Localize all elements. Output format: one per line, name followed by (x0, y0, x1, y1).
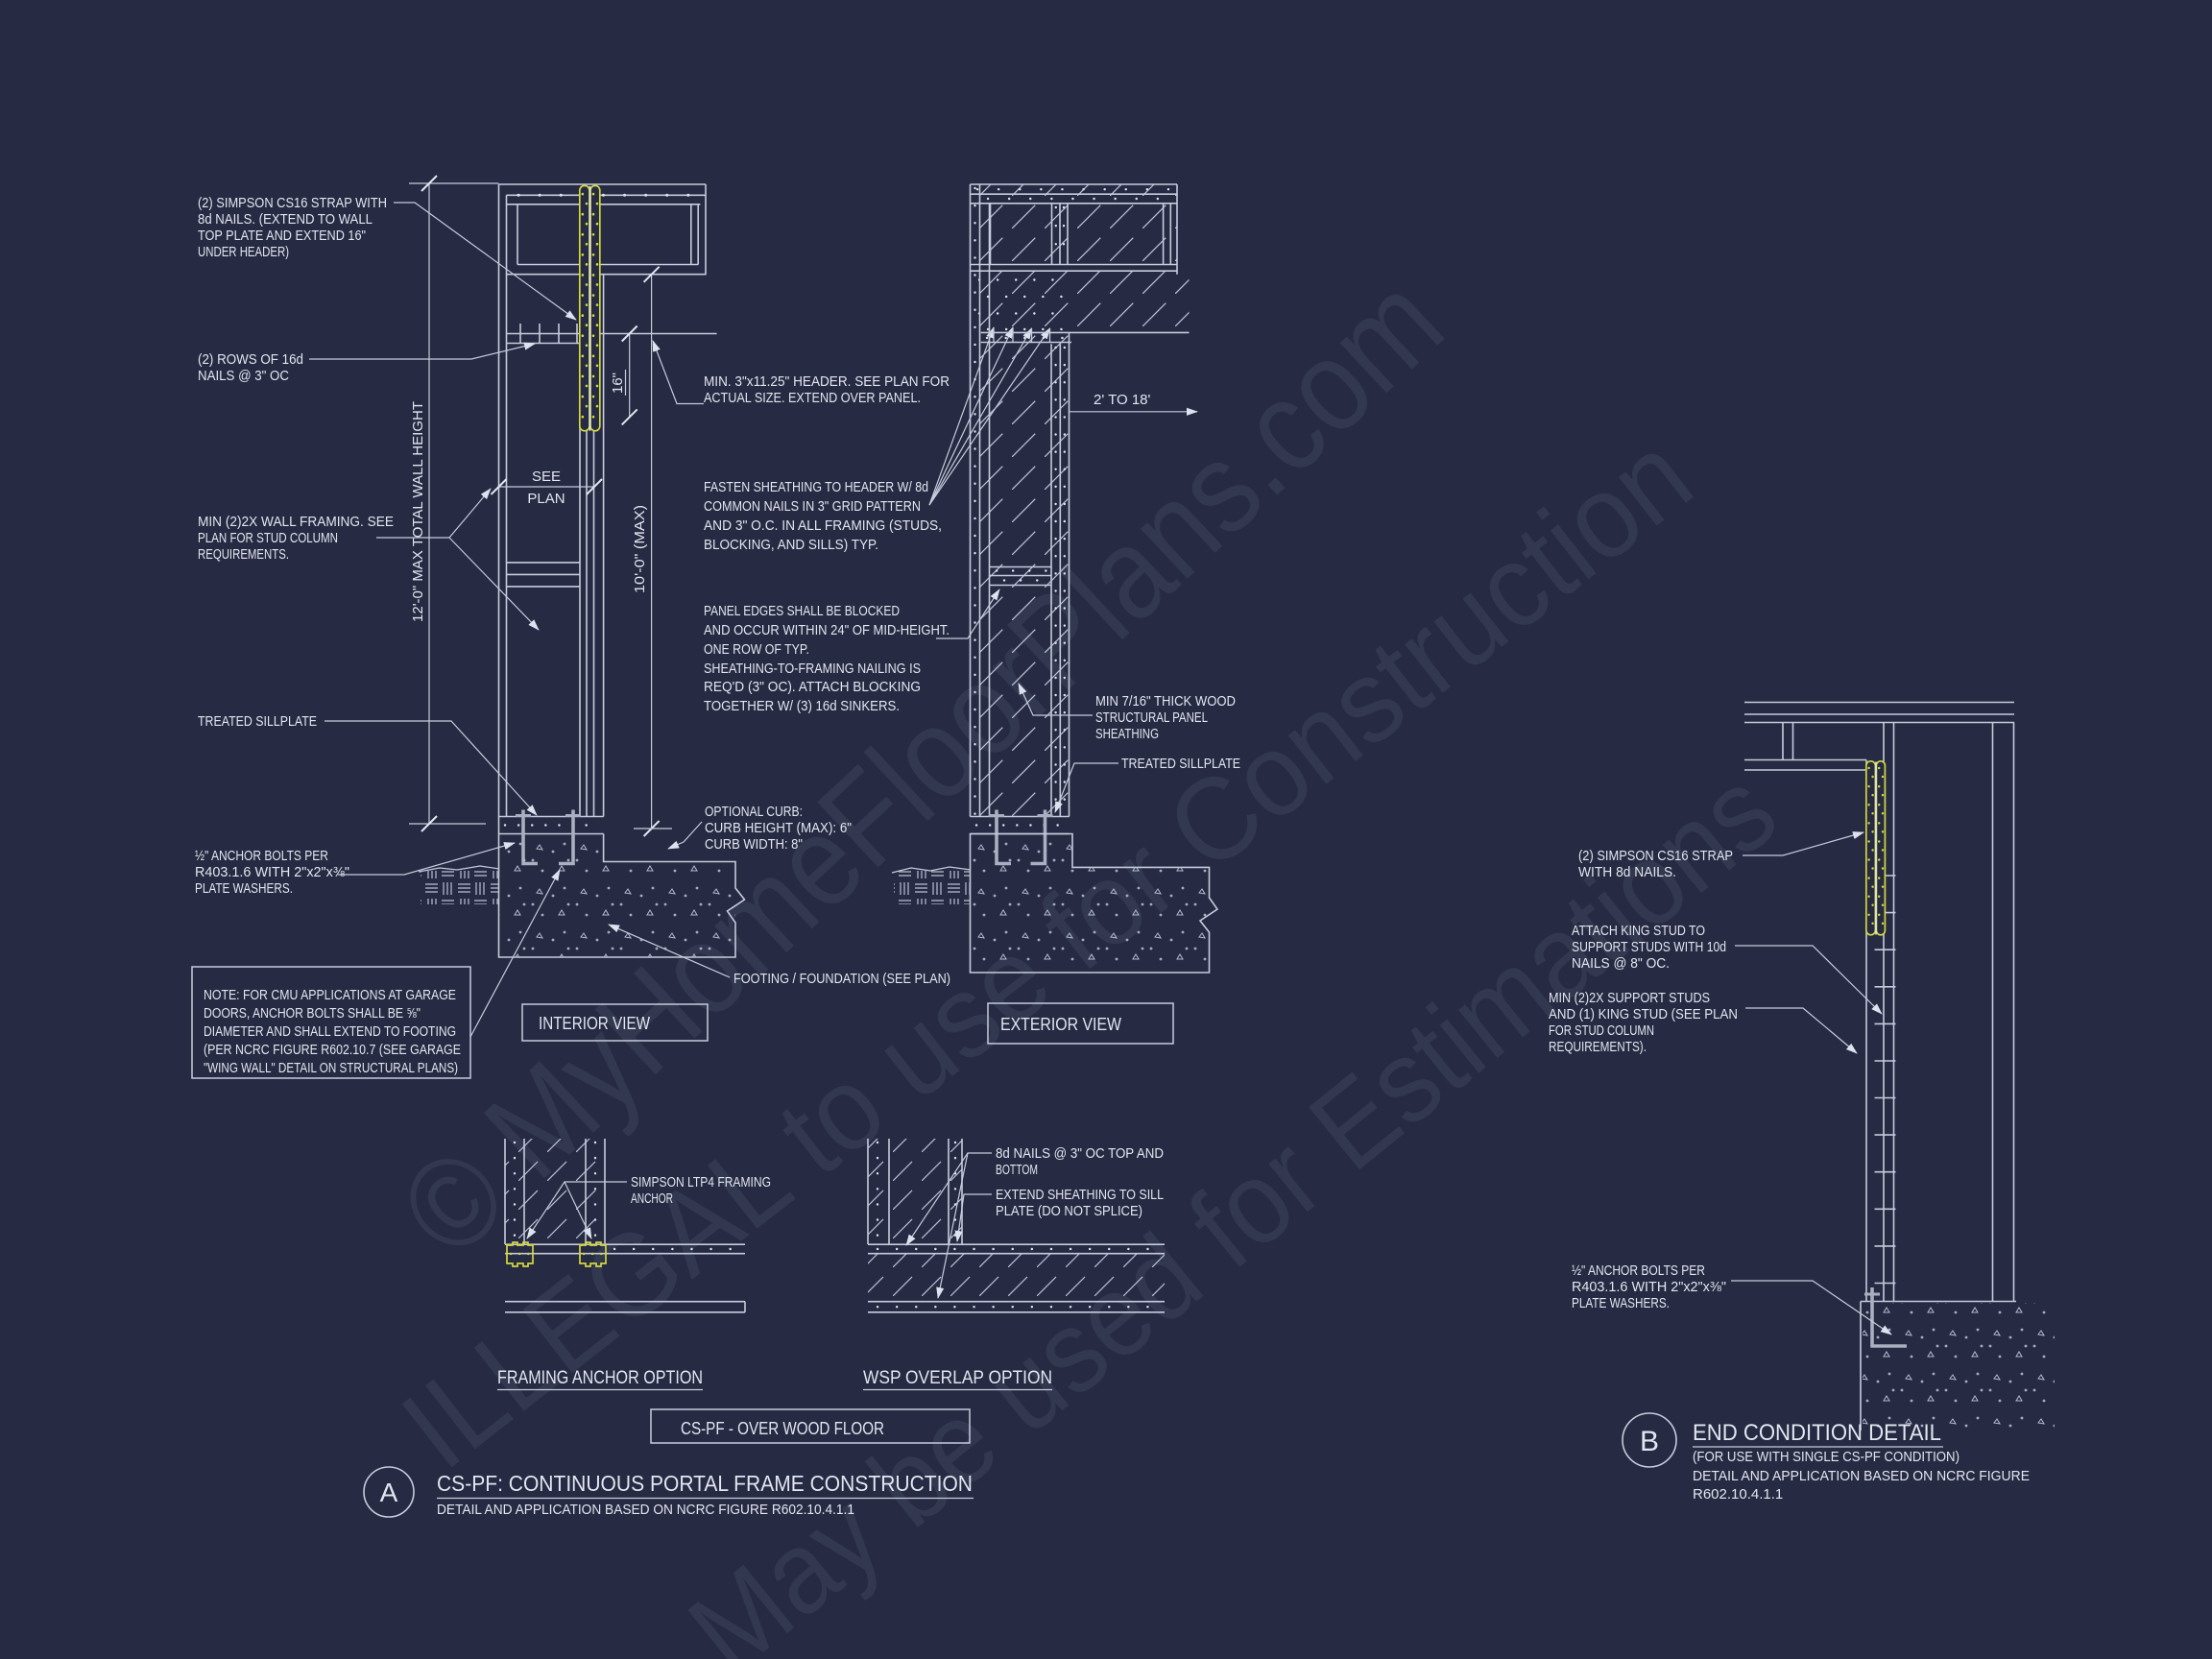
svg-text:R403.1.6 WITH 2"x2"x⅜": R403.1.6 WITH 2"x2"x⅜" (1572, 1280, 1726, 1295)
svg-text:COMMON NAILS IN 3" GRID PATTER: COMMON NAILS IN 3" GRID PATTERN (704, 499, 921, 515)
svg-text:SHEATHING: SHEATHING (1095, 727, 1159, 742)
svg-text:8d NAILS @ 3" OC TOP AND: 8d NAILS @ 3" OC TOP AND (996, 1146, 1164, 1162)
svg-text:FASTEN SHEATHING TO HEADER W/: FASTEN SHEATHING TO HEADER W/ 8d (704, 480, 928, 495)
svg-text:FOOTING / FOUNDATION (SEE PLAN: FOOTING / FOUNDATION (SEE PLAN) (733, 972, 950, 987)
svg-text:OPTIONAL CURB:: OPTIONAL CURB: (705, 805, 803, 820)
svg-text:AND (1) KING STUD (SEE PLAN: AND (1) KING STUD (SEE PLAN (1549, 1007, 1738, 1022)
svg-text:CURB HEIGHT (MAX): 6": CURB HEIGHT (MAX): 6" (705, 821, 852, 836)
svg-text:(2) SIMPSON CS16 STRAP WITH: (2) SIMPSON CS16 STRAP WITH (198, 196, 387, 211)
svg-text:ACTUAL SIZE. EXTEND OVER PANEL: ACTUAL SIZE. EXTEND OVER PANEL. (704, 391, 921, 406)
svg-text:FOR STUD COLUMN: FOR STUD COLUMN (1549, 1023, 1654, 1039)
svg-text:CURB WIDTH: 8": CURB WIDTH: 8" (705, 837, 803, 853)
svg-text:PLATE WASHERS.: PLATE WASHERS. (195, 881, 293, 897)
svg-text:PLATE (DO NOT SPLICE): PLATE (DO NOT SPLICE) (996, 1204, 1142, 1219)
svg-text:FRAMING ANCHOR OPTION: FRAMING ANCHOR OPTION (497, 1368, 703, 1388)
svg-text:TOGETHER W/ (3) 16d SINKERS.: TOGETHER W/ (3) 16d SINKERS. (704, 699, 900, 714)
svg-text:EXTEND SHEATHING TO SILL: EXTEND SHEATHING TO SILL (996, 1188, 1164, 1203)
svg-text:AND OCCUR WITHIN 24" OF MID-HE: AND OCCUR WITHIN 24" OF MID-HEIGHT. (704, 623, 950, 638)
svg-text:REQ'D (3" OC). ATTACH BLOCKIN: REQ'D (3" OC). ATTACH BLOCKING (704, 680, 921, 695)
svg-text:MIN (2)2X SUPPORT STUDS: MIN (2)2X SUPPORT STUDS (1549, 991, 1710, 1006)
svg-text:ATTACH KING STUD TO: ATTACH KING STUD TO (1572, 924, 1705, 939)
svg-text:TREATED SILLPLATE: TREATED SILLPLATE (1121, 757, 1240, 772)
svg-text:NAILS @ 3" OC: NAILS @ 3" OC (198, 369, 289, 384)
svg-text:R403.1.6 WITH 2"x2"x⅜": R403.1.6 WITH 2"x2"x⅜" (195, 865, 349, 880)
svg-text:SUPPORT STUDS WITH 10d: SUPPORT STUDS WITH 10d (1572, 940, 1726, 955)
svg-text:A: A (380, 1478, 398, 1507)
svg-text:CS-PF: CONTINUOUS PORTAL FRAME: CS-PF: CONTINUOUS PORTAL FRAME CONSTRUCT… (437, 1471, 973, 1496)
svg-text:AND 3" O.C. IN ALL FRAMING (ST: AND 3" O.C. IN ALL FRAMING (STUDS, (704, 518, 942, 534)
svg-text:8d NAILS. (EXTEND TO WALL: 8d NAILS. (EXTEND TO WALL (198, 212, 373, 228)
svg-text:(2) ROWS OF 16d: (2) ROWS OF 16d (198, 352, 303, 368)
svg-text:INTERIOR VIEW: INTERIOR VIEW (539, 1014, 650, 1033)
svg-text:10'-0" (MAX): 10'-0" (MAX) (632, 505, 648, 593)
svg-text:PLAN FOR STUD COLUMN: PLAN FOR STUD COLUMN (198, 531, 338, 546)
svg-text:PLATE WASHERS.: PLATE WASHERS. (1572, 1296, 1670, 1311)
svg-text:PLAN: PLAN (527, 491, 565, 507)
svg-text:½" ANCHOR BOLTS PER: ½" ANCHOR BOLTS PER (1572, 1263, 1705, 1279)
svg-text:½" ANCHOR BOLTS PER: ½" ANCHOR BOLTS PER (195, 849, 328, 864)
svg-text:SEE: SEE (532, 469, 561, 485)
svg-text:MIN. 3"x11.25" HEADER. SEE PLA: MIN. 3"x11.25" HEADER. SEE PLAN FOR (704, 374, 950, 390)
svg-text:16": 16" (610, 373, 626, 394)
svg-text:(2) SIMPSON CS16 STRAP: (2) SIMPSON CS16 STRAP (1578, 849, 1733, 864)
svg-text:DETAIL AND APPLICATION BASED O: DETAIL AND APPLICATION BASED ON NCRC FIG… (437, 1502, 854, 1518)
svg-text:BOTTOM: BOTTOM (996, 1163, 1038, 1178)
svg-text:WITH 8d NAILS.: WITH 8d NAILS. (1578, 865, 1676, 880)
svg-text:UNDER HEADER): UNDER HEADER) (198, 245, 289, 260)
svg-text:NOTE: FOR CMU APPLICATIONS AT: NOTE: FOR CMU APPLICATIONS AT GARAGE (204, 988, 456, 1003)
svg-text:STRUCTURAL PANEL: STRUCTURAL PANEL (1095, 710, 1208, 726)
svg-text:END CONDITION DETAIL: END CONDITION DETAIL (1693, 1420, 1941, 1446)
svg-text:TREATED SILLPLATE: TREATED SILLPLATE (198, 714, 317, 730)
svg-text:REQUIREMENTS).: REQUIREMENTS). (1549, 1040, 1647, 1055)
svg-text:WSP OVERLAP OPTION: WSP OVERLAP OPTION (863, 1368, 1052, 1388)
svg-text:DETAIL AND APPLICATION BASED O: DETAIL AND APPLICATION BASED ON NCRC FIG… (1693, 1468, 2030, 1484)
svg-text:(FOR USE WITH SINGLE CS-PF CON: (FOR USE WITH SINGLE CS-PF CONDITION) (1693, 1449, 1960, 1465)
svg-text:MIN 7/16" THICK WOOD: MIN 7/16" THICK WOOD (1095, 694, 1236, 709)
svg-text:TOP PLATE AND EXTEND 16": TOP PLATE AND EXTEND 16" (198, 228, 366, 244)
svg-text:2' TO 18': 2' TO 18' (1094, 392, 1151, 408)
svg-text:(PER NCRC FIGURE R602.10.7 (SE: (PER NCRC FIGURE R602.10.7 (SEE GARAGE (204, 1043, 461, 1058)
svg-text:12'-0" MAX TOTAL WALL HEIGHT: 12'-0" MAX TOTAL WALL HEIGHT (410, 401, 426, 622)
svg-text:NAILS @ 8" OC.: NAILS @ 8" OC. (1572, 956, 1670, 972)
svg-text:R602.10.4.1.1: R602.10.4.1.1 (1693, 1486, 1783, 1503)
svg-text:"WING WALL" DETAIL ON STRUCTUR: "WING WALL" DETAIL ON STRUCTURAL PLANS) (204, 1061, 458, 1076)
svg-text:DOORS, ANCHOR BOLTS SHALL BE ⅝: DOORS, ANCHOR BOLTS SHALL BE ⅝" (204, 1006, 421, 1022)
svg-text:ANCHOR: ANCHOR (631, 1191, 673, 1207)
svg-text:DIAMETER AND SHALL EXTEND TO F: DIAMETER AND SHALL EXTEND TO FOOTING (204, 1024, 456, 1040)
svg-text:B: B (1640, 1426, 1659, 1457)
svg-text:REQUIREMENTS.: REQUIREMENTS. (198, 547, 289, 563)
svg-text:SHEATHING-TO-FRAMING NAILING I: SHEATHING-TO-FRAMING NAILING IS (704, 661, 921, 677)
svg-text:SIMPSON LTP4 FRAMING: SIMPSON LTP4 FRAMING (631, 1175, 771, 1190)
svg-text:PANEL EDGES SHALL BE BLOCKED: PANEL EDGES SHALL BE BLOCKED (704, 604, 900, 619)
svg-text:ONE ROW OF TYP.: ONE ROW OF TYP. (704, 642, 809, 658)
svg-text:EXTERIOR VIEW: EXTERIOR VIEW (1000, 1015, 1121, 1034)
svg-text:BLOCKING, AND SILLS) TYP.: BLOCKING, AND SILLS) TYP. (704, 538, 878, 553)
svg-text:CS-PF - OVER WOOD FLOOR: CS-PF - OVER WOOD FLOOR (681, 1419, 884, 1438)
svg-text:MIN (2)2X WALL FRAMING. SEE: MIN (2)2X WALL FRAMING. SEE (198, 515, 394, 530)
